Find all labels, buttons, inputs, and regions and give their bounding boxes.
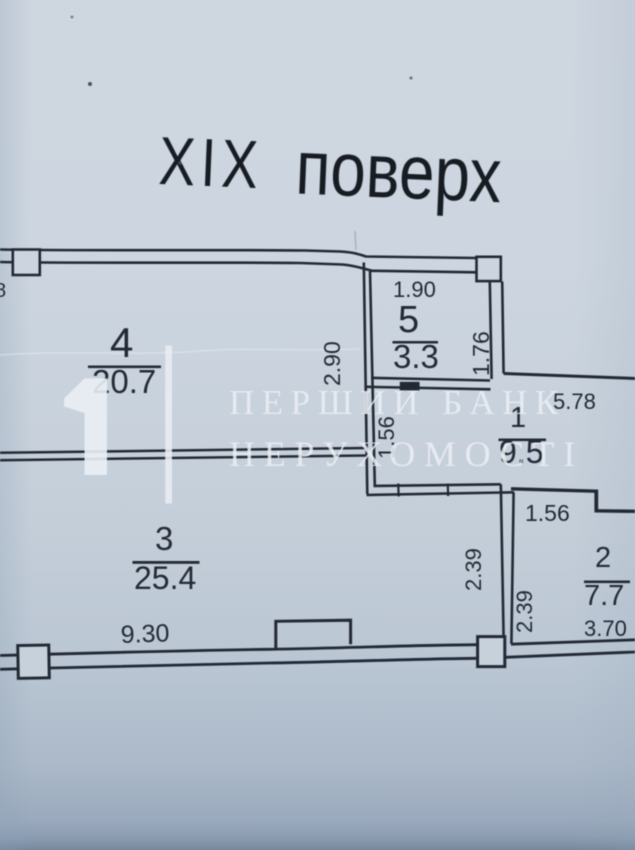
svg-text:2: 2 (595, 542, 611, 574)
svg-text:25.4: 25.4 (134, 560, 196, 596)
svg-text:1.56: 1.56 (525, 500, 570, 526)
svg-text:3.3: 3.3 (393, 338, 439, 375)
svg-text:5: 5 (398, 299, 419, 341)
svg-text:НЕРУХОМОСТІ: НЕРУХОМОСТІ (229, 434, 584, 474)
svg-text:ПЕРШИЙ БАНК: ПЕРШИЙ БАНК (229, 383, 566, 422)
svg-text:9.30: 9.30 (120, 619, 170, 649)
svg-text:поверх: поверх (294, 124, 503, 219)
svg-text:2.39: 2.39 (461, 548, 486, 591)
svg-text:7.7: 7.7 (584, 580, 624, 612)
svg-text:2.90: 2.90 (319, 341, 345, 386)
svg-text:XIX: XIX (157, 123, 265, 204)
svg-text:4: 4 (110, 319, 133, 366)
svg-text:3.70: 3.70 (584, 616, 627, 641)
svg-text:8: 8 (0, 280, 6, 302)
svg-text:3: 3 (155, 520, 173, 557)
svg-text:2.39: 2.39 (512, 590, 537, 633)
svg-text:1.90: 1.90 (393, 277, 436, 302)
